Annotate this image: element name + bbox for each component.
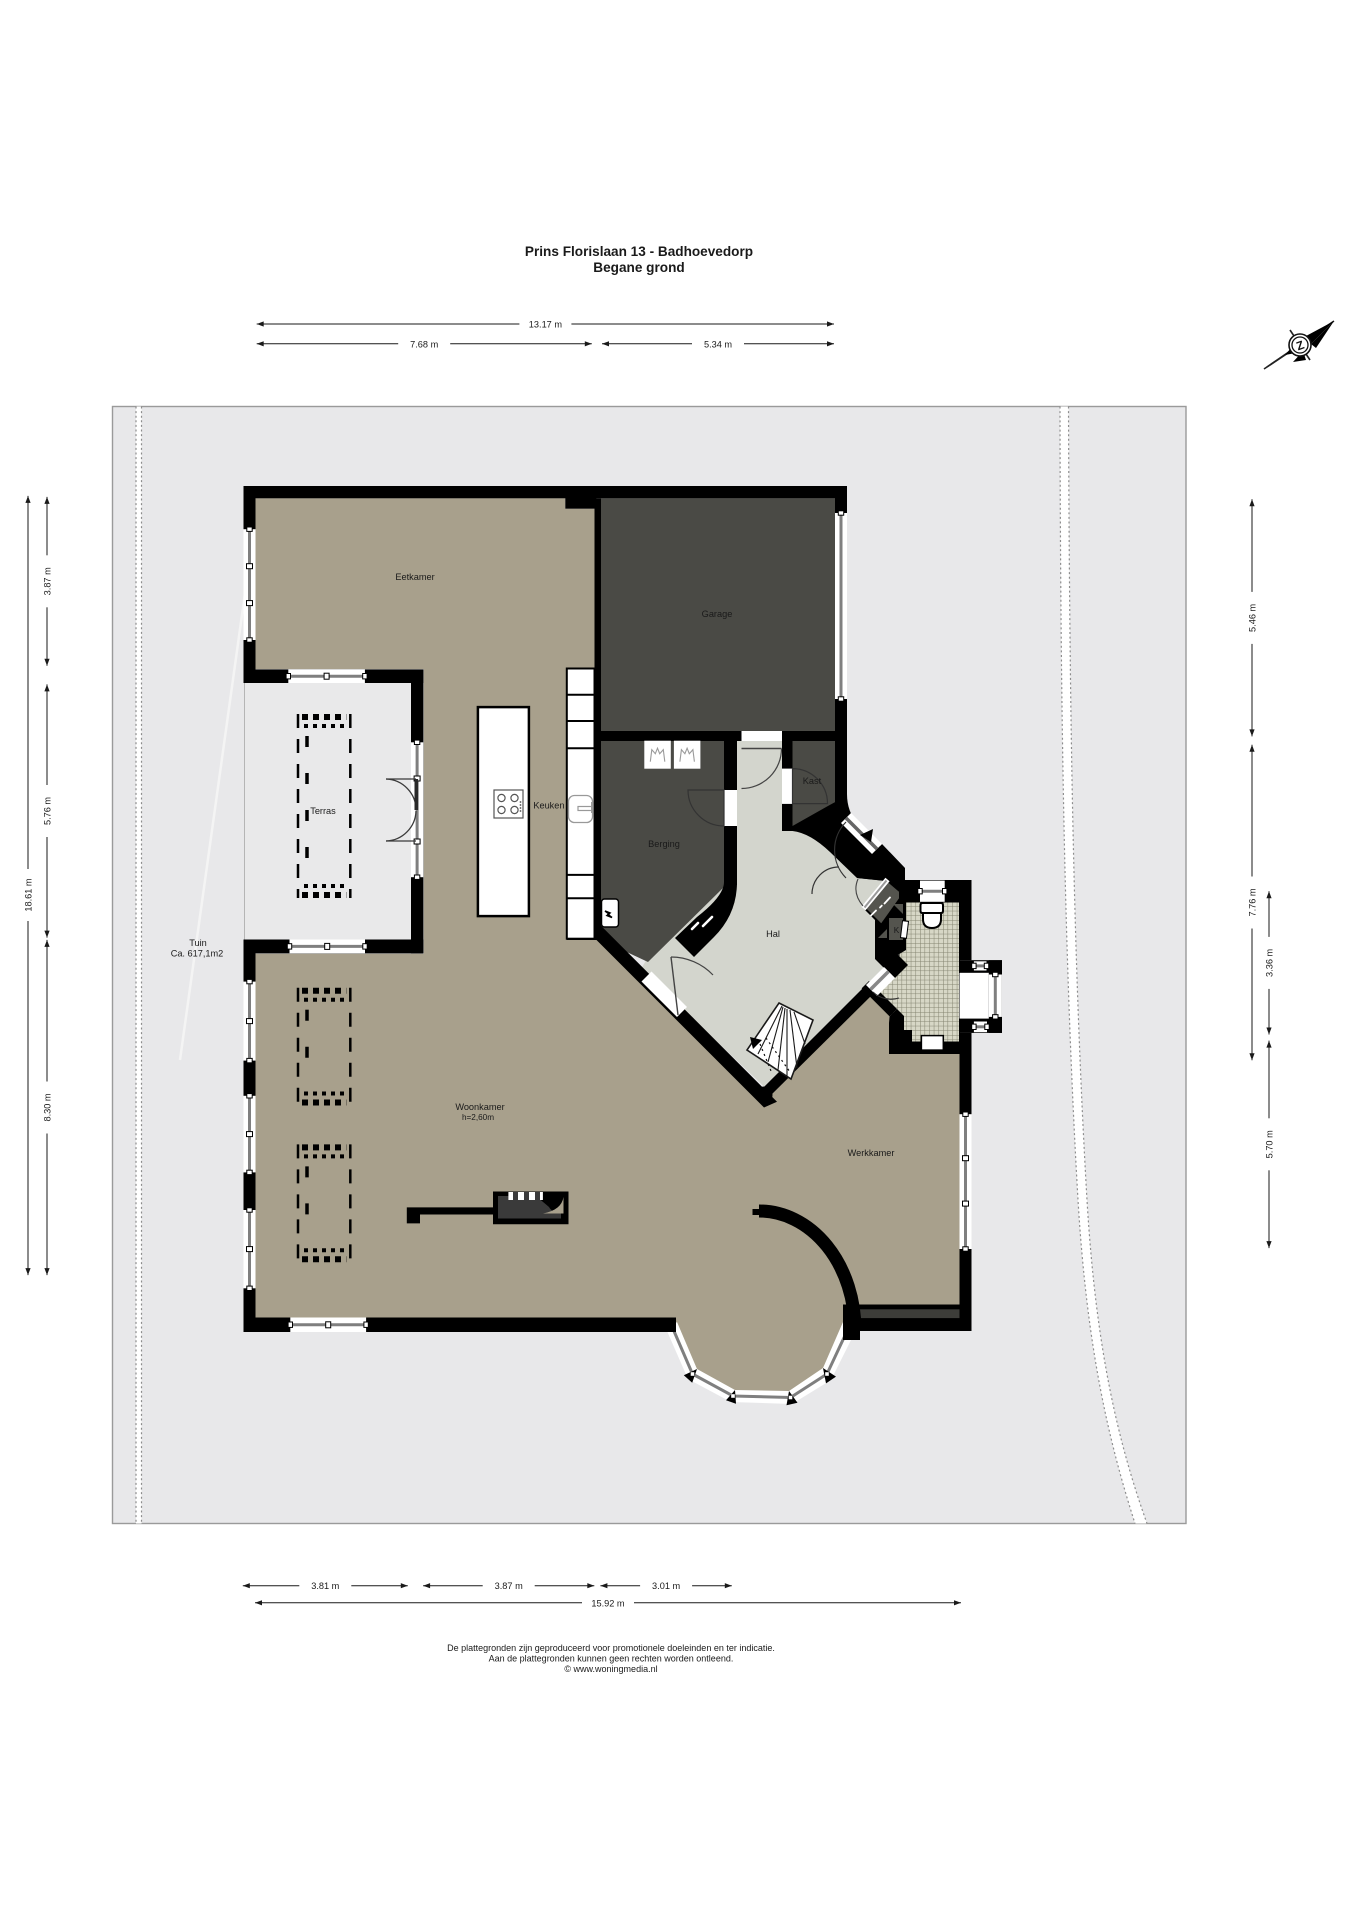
svg-text:De plattegronden zijn geproduc: De plattegronden zijn geproduceerd voor … bbox=[447, 1643, 775, 1653]
svg-text:Garage: Garage bbox=[702, 609, 733, 619]
svg-text:Aan de plattegronden kunnen ge: Aan de plattegronden kunnen geen rechten… bbox=[489, 1654, 734, 1664]
svg-text:Terras: Terras bbox=[310, 806, 336, 816]
svg-text:K: K bbox=[894, 926, 900, 935]
svg-text:Prins Florislaan 13 - Badhoeve: Prins Florislaan 13 - Badhoevedorp bbox=[525, 244, 753, 259]
svg-text:Werkkamer: Werkkamer bbox=[848, 1148, 895, 1158]
svg-text:7.76 m: 7.76 m bbox=[1248, 888, 1258, 916]
svg-text:3.81 m: 3.81 m bbox=[311, 1581, 339, 1591]
svg-text:h=2,60m: h=2,60m bbox=[462, 1113, 494, 1122]
svg-text:3.87 m: 3.87 m bbox=[43, 567, 53, 595]
svg-text:Kast: Kast bbox=[803, 776, 822, 786]
svg-text:Keuken: Keuken bbox=[533, 801, 564, 811]
svg-text:© www.woningmedia.nl: © www.woningmedia.nl bbox=[564, 1664, 657, 1674]
svg-text:7.68 m: 7.68 m bbox=[410, 339, 438, 349]
svg-text:8.30 m: 8.30 m bbox=[43, 1093, 53, 1121]
svg-text:Eetkamer: Eetkamer bbox=[395, 572, 434, 582]
svg-text:13.17 m: 13.17 m bbox=[529, 320, 563, 330]
svg-text:Ca. 617,1m2: Ca. 617,1m2 bbox=[171, 949, 224, 959]
svg-text:3.36 m: 3.36 m bbox=[1265, 949, 1275, 977]
svg-text:5.70 m: 5.70 m bbox=[1265, 1130, 1275, 1158]
svg-text:3.01 m: 3.01 m bbox=[652, 1581, 680, 1591]
svg-text:18.61 m: 18.61 m bbox=[24, 878, 34, 912]
svg-text:5.76 m: 5.76 m bbox=[43, 797, 53, 825]
svg-text:Begane grond: Begane grond bbox=[593, 260, 684, 275]
svg-text:Woonkamer: Woonkamer bbox=[455, 1102, 504, 1112]
svg-text:5.34 m: 5.34 m bbox=[704, 339, 732, 349]
svg-text:Berging: Berging bbox=[648, 839, 680, 849]
svg-text:5.46 m: 5.46 m bbox=[1248, 604, 1258, 632]
svg-text:15.92 m: 15.92 m bbox=[591, 1598, 625, 1608]
svg-text:Tuin: Tuin bbox=[189, 938, 207, 948]
svg-text:3.87 m: 3.87 m bbox=[495, 1581, 523, 1591]
svg-text:Hal: Hal bbox=[766, 929, 780, 939]
